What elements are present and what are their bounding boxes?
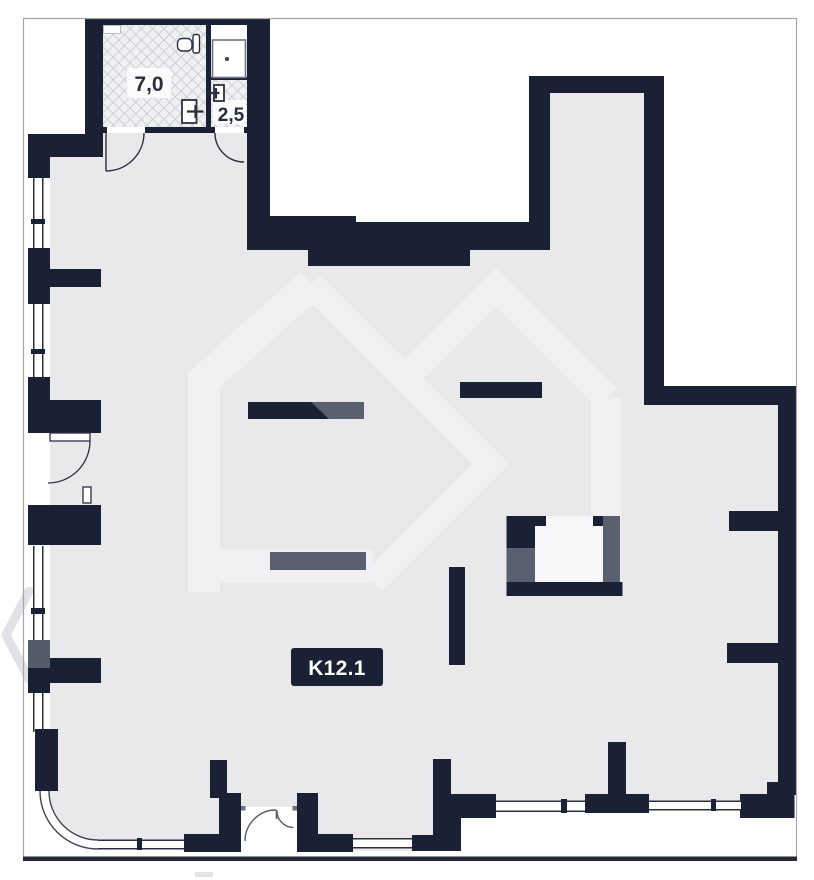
svg-text:7,0: 7,0 (134, 73, 163, 96)
svg-text:K12.1: K12.1 (308, 657, 366, 680)
svg-text:2,5: 2,5 (218, 105, 245, 126)
